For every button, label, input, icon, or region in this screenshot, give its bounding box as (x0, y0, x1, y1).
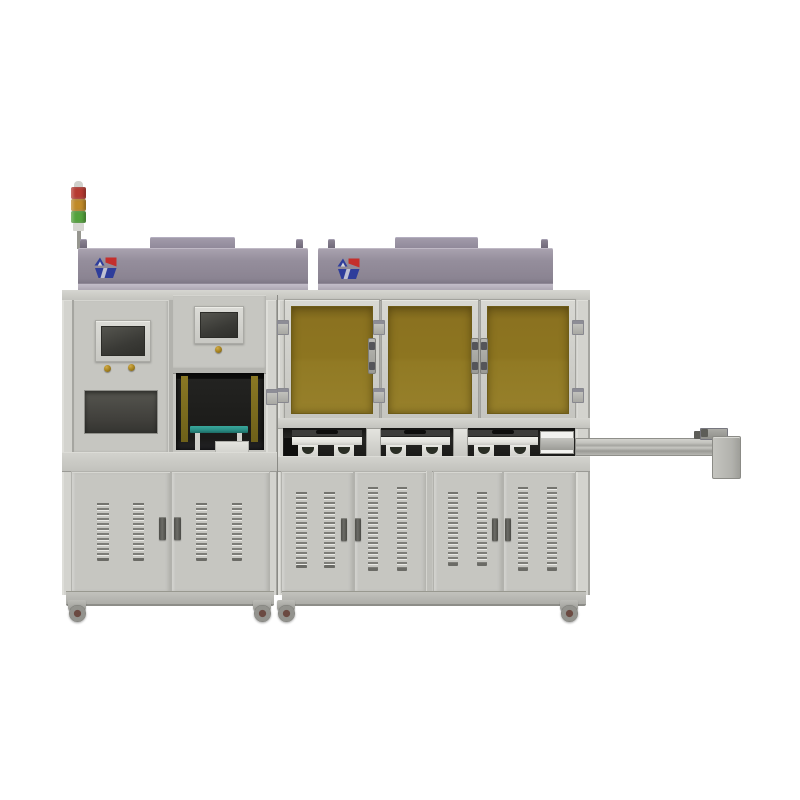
tower-red-lamp (71, 187, 86, 199)
caster-wheel (556, 600, 583, 623)
caster-tire (254, 605, 271, 622)
vent-grille (368, 487, 378, 571)
brand-logo-icon (93, 256, 118, 279)
vent-grille (196, 503, 207, 561)
machine-render (0, 0, 800, 800)
conveyor-rail (575, 438, 723, 456)
brand-logo-icon (336, 257, 361, 280)
door-stile (426, 471, 432, 591)
window-hinge (373, 320, 385, 335)
door-handle (341, 518, 347, 541)
band-divider (366, 428, 381, 458)
door-handle (174, 517, 181, 540)
vent-grille (232, 503, 242, 561)
door-handle (505, 518, 511, 541)
caster-tire (561, 605, 578, 622)
tower-green-lamp (71, 211, 86, 223)
door-handle (355, 518, 361, 541)
door-handle (492, 518, 498, 541)
tower-amber-lamp (71, 199, 86, 211)
sensor-lens (701, 429, 708, 437)
hmi-screen (101, 326, 145, 356)
vent-grille (296, 492, 307, 568)
vent-grille (397, 487, 407, 571)
window-hinge (572, 320, 584, 335)
window-hinge (572, 388, 584, 403)
amber-window-glass (388, 306, 472, 414)
module-tab (316, 430, 338, 434)
left-bay-base (66, 591, 274, 606)
vent-grille (97, 503, 109, 561)
right-bay-mid-sill (278, 456, 590, 472)
opening-amber-strip-right (251, 376, 258, 442)
opening-amber-strip-left (181, 376, 188, 442)
caster-wheel (64, 600, 91, 623)
vent-grille (324, 492, 335, 568)
window-hinge (277, 388, 289, 403)
cabinet-door (503, 471, 576, 593)
vent-grille (477, 492, 487, 566)
module-beam (292, 437, 362, 445)
amber-window-glass (487, 306, 569, 414)
window-hinge (373, 388, 385, 403)
window-hinge (277, 320, 289, 335)
left-bay-mid-sill (62, 452, 278, 472)
module-beam (380, 437, 450, 445)
tower-base (73, 223, 84, 231)
worktable-leg (195, 433, 200, 450)
push-button (104, 365, 111, 372)
module-tab (404, 430, 426, 434)
door-handle (159, 517, 166, 540)
vent-grille (448, 492, 458, 566)
teal-worktable (190, 426, 248, 433)
cabinet-door (71, 471, 171, 593)
vent-grille (518, 487, 528, 571)
window-handle (480, 338, 488, 374)
module-beam (468, 437, 538, 445)
module-tab (492, 430, 514, 434)
push-button (128, 364, 135, 371)
dark-window-panel (84, 390, 158, 434)
caster-tire (69, 605, 86, 622)
vent-grille (133, 503, 144, 561)
right-bay-base (282, 591, 586, 606)
caster-wheel (273, 600, 300, 623)
vent-grille (547, 487, 557, 571)
window-handle (471, 338, 479, 374)
caster-wheel (249, 600, 276, 623)
cabinet-door (354, 471, 427, 593)
end-effector-plate (712, 436, 741, 479)
caster-tire (278, 605, 295, 622)
band-divider (453, 428, 468, 458)
pass-through-rail (541, 438, 574, 450)
hmi-screen (200, 312, 238, 338)
window-handle (368, 338, 376, 374)
cabinet-door (171, 471, 270, 593)
amber-window-glass (291, 306, 373, 414)
push-button (215, 346, 222, 353)
